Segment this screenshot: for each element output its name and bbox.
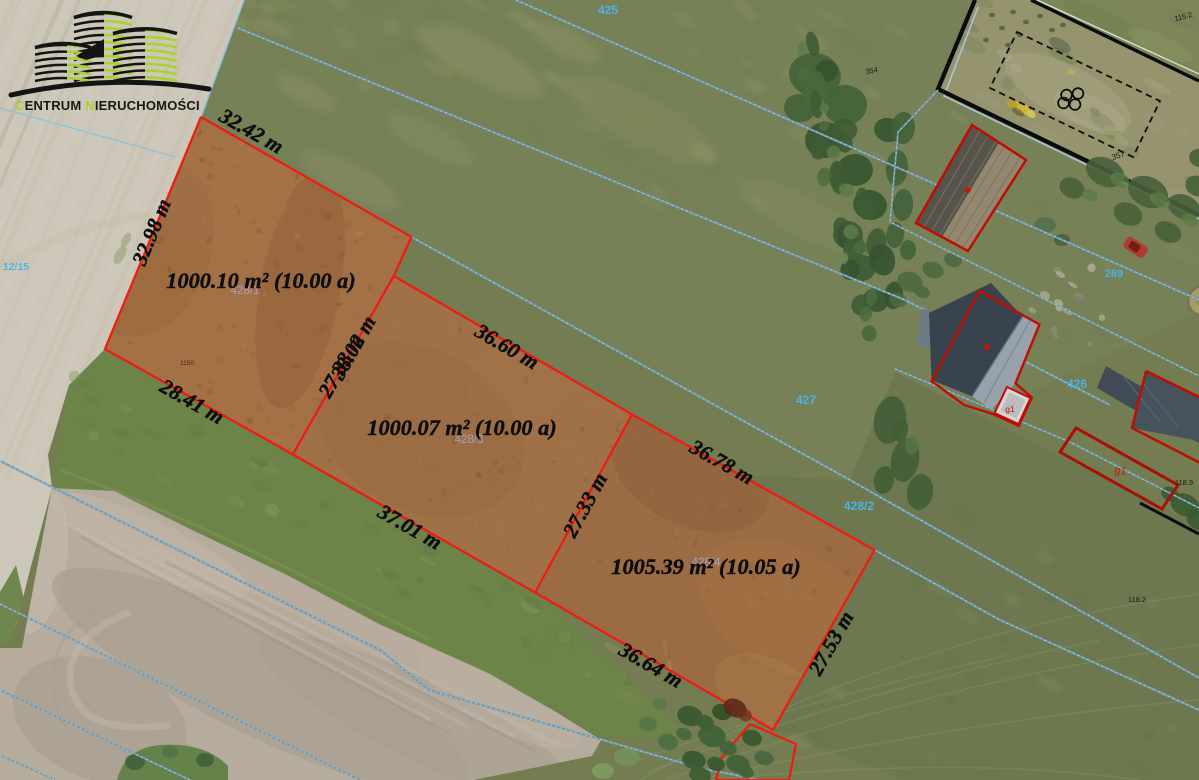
svg-text:g1: g1 [1005,404,1015,414]
svg-text:1005.39 m² (10.05 a): 1005.39 m² (10.05 a) [611,554,800,579]
svg-text:118.2: 118.2 [1128,595,1146,604]
svg-text:1150: 1150 [180,360,194,367]
svg-text:426: 426 [1067,377,1087,391]
svg-text:428/2: 428/2 [844,499,874,513]
svg-text:425: 425 [598,3,618,17]
svg-text:CENTRUM NIERUCHOMOŚCI: CENTRUM NIERUCHOMOŚCI [15,98,200,113]
svg-text:118.9: 118.9 [1175,478,1193,487]
svg-text:1000.10 m² (10.00 a): 1000.10 m² (10.00 a) [166,268,355,293]
svg-text:269: 269 [1105,268,1123,280]
svg-text:g1: g1 [1114,464,1128,478]
svg-text:1000.07 m² (10.00 a): 1000.07 m² (10.00 a) [367,415,556,440]
svg-text:427: 427 [796,393,816,407]
svg-text:12/15: 12/15 [3,261,29,273]
